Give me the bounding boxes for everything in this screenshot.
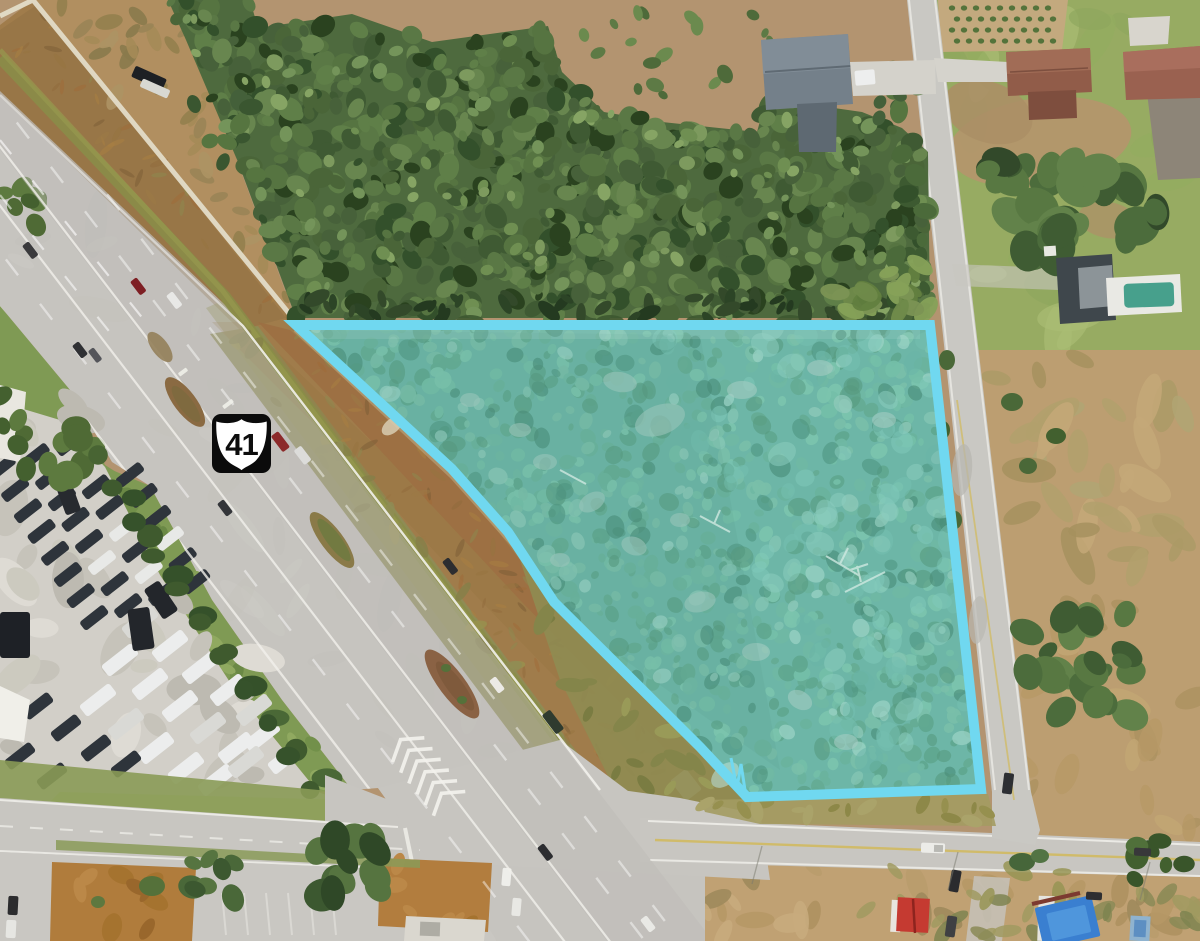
svg-text:41: 41 <box>225 427 258 462</box>
